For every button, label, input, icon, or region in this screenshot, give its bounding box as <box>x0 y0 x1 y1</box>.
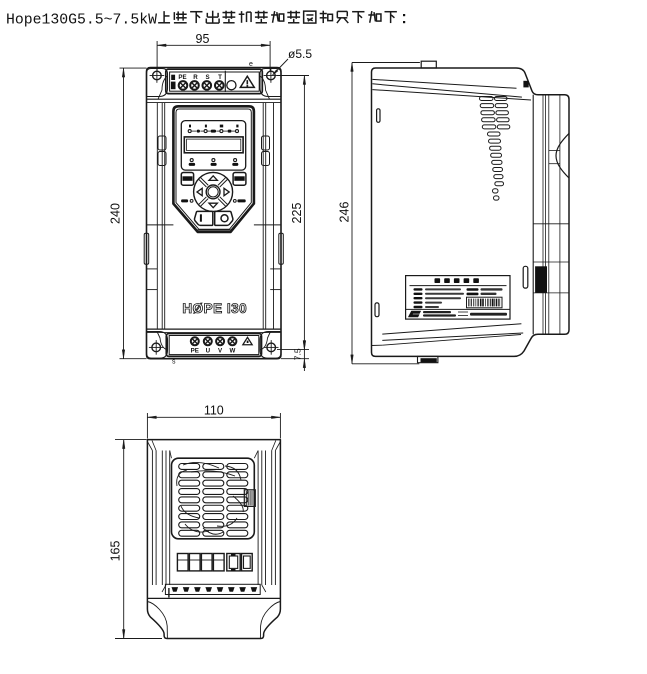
svg-text:7.5: 7.5 <box>293 348 303 360</box>
svg-text:s: s <box>172 359 176 366</box>
svg-text:U: U <box>206 347 211 354</box>
svg-text:240: 240 <box>109 203 123 224</box>
svg-text:ø5.5: ø5.5 <box>288 47 312 61</box>
svg-text:95: 95 <box>196 32 210 46</box>
svg-text:110: 110 <box>204 404 224 418</box>
svg-text:225: 225 <box>290 203 304 224</box>
svg-text:165: 165 <box>109 541 123 562</box>
svg-text:246: 246 <box>338 202 352 223</box>
svg-text:Hope130G5.5~7.5kW: Hope130G5.5~7.5kW <box>6 13 157 29</box>
svg-text:W: W <box>229 347 235 354</box>
svg-text:PE: PE <box>191 347 199 354</box>
svg-text:HØPE I30: HØPE I30 <box>182 301 247 316</box>
